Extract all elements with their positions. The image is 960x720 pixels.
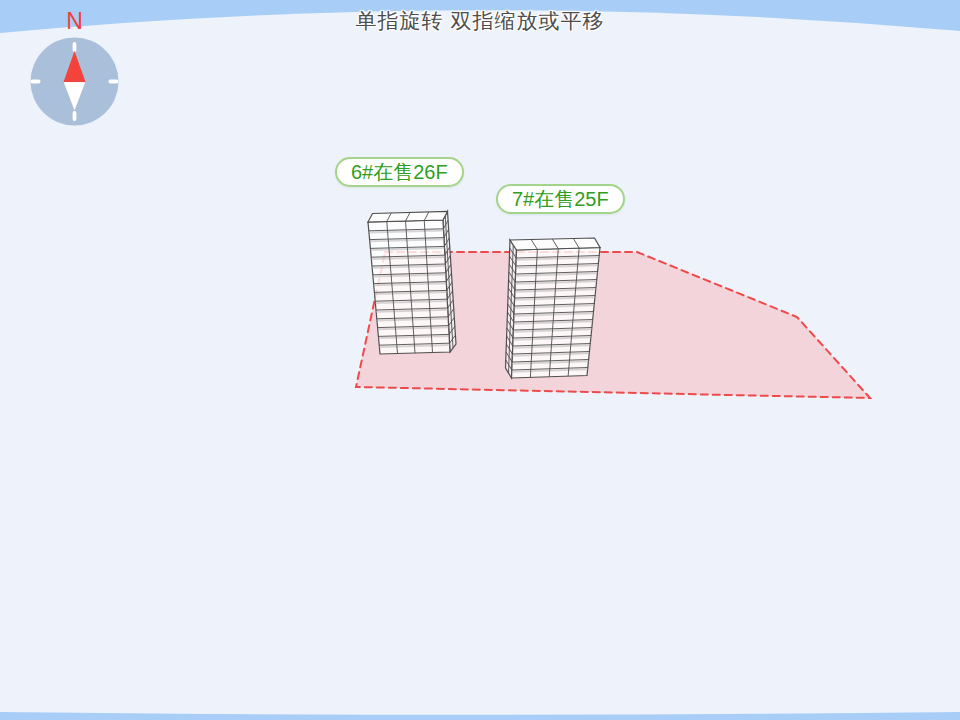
compass[interactable] — [31, 38, 119, 126]
building-7-tower[interactable] — [506, 238, 601, 378]
compass-tick-north — [73, 42, 77, 52]
compass-tick-south — [73, 111, 77, 121]
building-7-label[interactable]: 7#在售25F — [496, 184, 625, 214]
building-6-tower[interactable] — [368, 212, 456, 355]
compass-tick-east — [109, 80, 119, 84]
map-3d-canvas[interactable] — [0, 0, 960, 720]
north-label: N — [30, 8, 119, 35]
building-6-label[interactable]: 6#在售26F — [335, 157, 464, 187]
compass-tick-west — [31, 80, 41, 84]
